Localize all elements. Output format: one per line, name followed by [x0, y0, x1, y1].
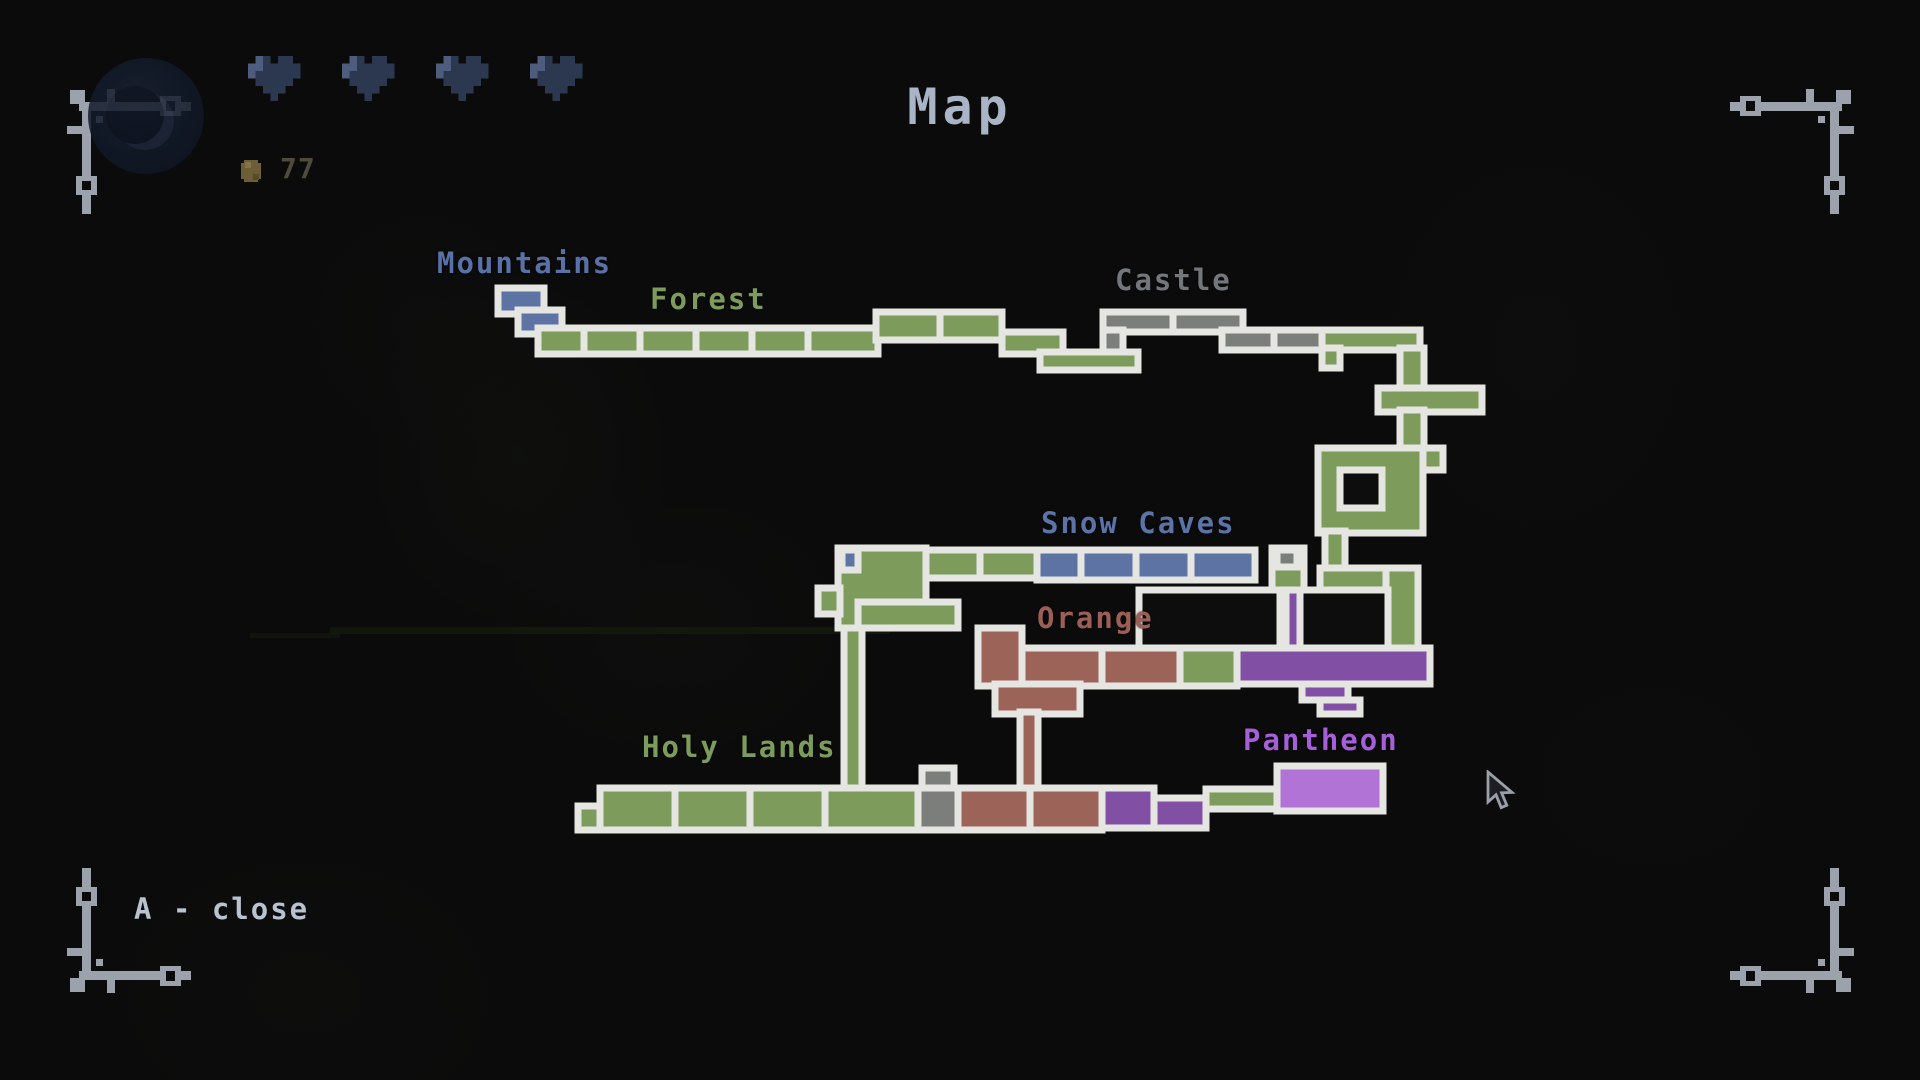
map-room	[958, 788, 1030, 830]
close-hint: A - close	[134, 892, 309, 926]
map-room	[926, 550, 980, 578]
map-room	[1102, 648, 1180, 686]
map-room	[1322, 348, 1340, 368]
map-room	[1103, 330, 1123, 352]
map-room	[876, 312, 940, 340]
map-room	[1139, 590, 1280, 648]
region-label-forest: Forest	[650, 282, 767, 316]
map-room	[940, 312, 1002, 340]
map-room	[750, 788, 825, 830]
map-room	[818, 588, 840, 614]
region-label-holy-lands: Holy Lands	[642, 730, 837, 764]
map-room	[1081, 550, 1136, 580]
map-room	[1154, 798, 1206, 828]
region-label-snow-caves: Snow Caves	[1041, 506, 1236, 540]
map-room	[808, 328, 878, 354]
map-room	[1340, 470, 1382, 508]
map-room	[858, 602, 958, 628]
map-room	[1277, 766, 1383, 811]
map-room	[640, 328, 696, 354]
map-screen: 77 Map MountainsForestCastleSnow CavesOr…	[0, 0, 1920, 1080]
region-label-pantheon: Pantheon	[1243, 723, 1399, 757]
map-room	[918, 788, 958, 830]
map-room	[600, 788, 675, 830]
map-room	[825, 788, 918, 830]
map-room	[1237, 648, 1430, 684]
map-room	[1423, 448, 1443, 470]
map-room	[584, 328, 640, 354]
map-room	[1400, 348, 1424, 390]
map-room	[752, 328, 808, 354]
map-room	[1037, 550, 1081, 580]
map-room	[842, 550, 858, 570]
region-label-castle: Castle	[1115, 263, 1232, 297]
map-room	[1325, 531, 1345, 570]
map-room	[978, 628, 1022, 686]
map-room	[1191, 550, 1255, 580]
map-room	[696, 328, 752, 354]
map-room	[1020, 712, 1038, 790]
map-room	[980, 550, 1037, 578]
region-label-orange: Orange	[1037, 601, 1154, 635]
map-room	[1022, 648, 1102, 686]
map-room	[844, 628, 862, 792]
map-room	[538, 328, 584, 354]
map-room	[1222, 330, 1274, 350]
region-label-mountains: Mountains	[437, 246, 612, 280]
map-room	[1136, 550, 1191, 580]
map-room	[1300, 590, 1388, 648]
map-room	[1102, 788, 1154, 828]
map-room	[1206, 789, 1280, 809]
map-room	[675, 788, 750, 830]
map-room	[1274, 330, 1322, 350]
map-room	[1180, 648, 1237, 686]
mouse-cursor	[1484, 770, 1518, 814]
map-room	[1378, 388, 1482, 412]
map-room	[1277, 550, 1297, 567]
map-room	[1320, 700, 1360, 714]
map-room	[1030, 788, 1102, 830]
